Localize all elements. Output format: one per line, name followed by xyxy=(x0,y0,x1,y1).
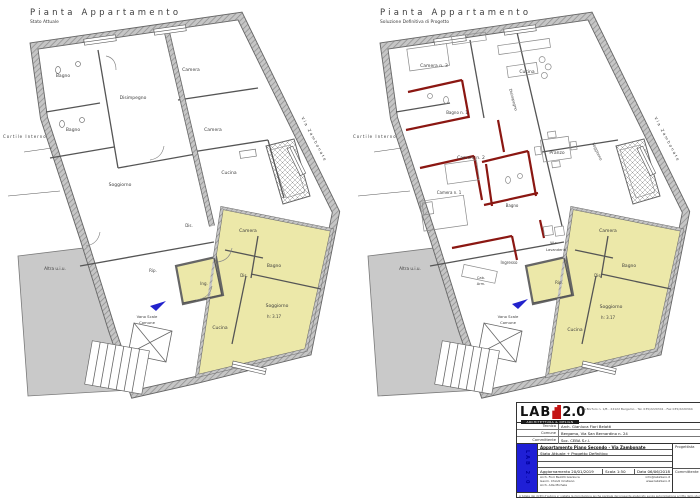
revision-row: Aggiornamento 20/01/2019 Scala 1:50 Data… xyxy=(538,468,672,475)
studio-address: Via Borfuro n. 1/B - 24122 Bergamo - Tel… xyxy=(581,407,700,411)
room-height-label: h: 3.17 xyxy=(267,314,282,319)
contact-list: info@lab2zero.it www.lab2zero.it xyxy=(646,476,670,491)
logo-lab-text: LAB xyxy=(520,407,551,419)
room-label: Camera xyxy=(204,127,222,133)
room-label: Dis. xyxy=(185,223,193,228)
neighbor-label: Altra u.i.u. xyxy=(44,266,66,271)
room-label: Ing. xyxy=(200,281,208,286)
title-block-main: LAB 2.0 Appartamento Piano Secondo - Via… xyxy=(517,444,700,493)
room-label: Pranzo xyxy=(549,150,564,156)
plan-title: Pianta Appartamento xyxy=(380,8,531,18)
studio-logo: LAB2.0 ARCHITETTURA & DESIGN xyxy=(520,405,585,419)
room-label: Cucina xyxy=(221,170,237,176)
room-label: Comune xyxy=(139,320,155,325)
legal-note: A tutela dei diritti d'autore e' vietata… xyxy=(517,493,700,500)
room-height-label: h: 3.17 xyxy=(601,315,616,320)
room-label: Camera n. 2 xyxy=(457,155,485,161)
room-label: Cucina xyxy=(567,327,583,333)
room-label: Rip. xyxy=(555,280,563,285)
info-row: Committente Soc. CEBA S.r.l. xyxy=(517,437,700,444)
courtyard-label: Cortile Interno xyxy=(353,134,397,139)
team-and-contacts: Arch. Fiori Belotti Gianluca Geom. Chiod… xyxy=(538,475,672,492)
room-label: Arm. xyxy=(477,282,486,286)
blue-strip: LAB 2.0 xyxy=(517,444,538,492)
logo-building-icon xyxy=(552,405,561,419)
room-label: Lavanderia xyxy=(546,248,566,252)
room-label: Camera xyxy=(182,67,200,73)
plan-title: Pianta Appartamento xyxy=(30,8,181,18)
room-label: Soggiorno xyxy=(109,182,132,188)
date-label: Data xyxy=(637,469,646,474)
drawing-sheet: Pianta Appartamento Stato Attuale Bagno … xyxy=(0,0,700,500)
team-list: Arch. Fiori Belotti Gianluca Geom. Chiod… xyxy=(540,476,580,491)
plan-subtitle: Soluzione Definitiva di Progetto xyxy=(380,19,449,25)
room-label: Ingresso xyxy=(501,260,518,265)
title-block: LAB2.0 ARCHITETTURA & DESIGN Via Borfuro… xyxy=(516,402,700,498)
info-value: Soc. CEBA S.r.l. xyxy=(559,437,700,444)
update-label: Aggiornamento xyxy=(540,469,570,474)
room-label: Camera n. 3 xyxy=(420,63,448,69)
project-info-table: Tecnico Arch. Gianluca Fiori Belotti Com… xyxy=(517,423,700,444)
scale-value: 1:50 xyxy=(617,469,626,474)
room-label: Cucina xyxy=(212,325,228,331)
info-row: Tecnico Arch. Gianluca Fiori Belotti xyxy=(517,423,700,430)
room-label: Dis. xyxy=(240,273,248,278)
room-label: Rip. xyxy=(149,268,157,273)
courtyard-label: Cortile Interno xyxy=(3,134,47,139)
floor-plan-project: Pianta Appartamento Soluzione Definitiva… xyxy=(350,0,700,400)
info-value: Bergamo, Via San Bernardino n. 24 xyxy=(559,430,700,436)
room-label: W.c. xyxy=(550,241,557,245)
room-label: Camera xyxy=(239,228,257,234)
info-value: Arch. Gianluca Fiori Belotti xyxy=(559,423,700,429)
designer-label: Progettista xyxy=(673,444,700,469)
signature-column: Progettista Committente xyxy=(673,444,700,492)
room-label: Bagno xyxy=(56,73,71,79)
room-label: Soggiorno xyxy=(600,304,623,310)
info-label: Committente xyxy=(517,437,559,444)
update-value: 20/01/2019 xyxy=(571,469,593,474)
room-label: Vano Scale xyxy=(137,314,158,319)
room-label: Bagno xyxy=(66,127,81,133)
plan-subtitle: Stato Attuale xyxy=(30,19,59,25)
room-label: Cucina xyxy=(519,69,535,75)
title-block-center: Appartamento Piano Secondo - Via Zambona… xyxy=(538,444,673,492)
floor-plan-existing: Pianta Appartamento Stato Attuale Bagno … xyxy=(0,0,350,400)
room-label: Camera xyxy=(599,228,617,234)
client-label: Committente xyxy=(673,469,700,493)
room-label: Bagno xyxy=(506,203,519,208)
room-label: Cab. xyxy=(477,276,485,280)
neighbor-label: Altra u.i.u. xyxy=(399,266,421,271)
room-label: Vano Scale xyxy=(498,314,519,319)
title-block-header: LAB2.0 ARCHITETTURA & DESIGN Via Borfuro… xyxy=(517,403,700,423)
room-label: Soggiorno xyxy=(266,303,289,309)
room-label: Camera n. 1 xyxy=(437,190,462,195)
room-label: Bagno n. 1 xyxy=(446,110,468,115)
team-member: Arch. Aita Michela xyxy=(540,484,580,488)
room-label: Comune xyxy=(500,320,516,325)
room-label: Dis. xyxy=(594,273,602,278)
logo-tagline: ARCHITETTURA & DESIGN xyxy=(521,420,579,424)
contact-website: www.lab2zero.it xyxy=(646,480,670,484)
info-label: Comune xyxy=(517,430,559,436)
info-row: Comune Bergamo, Via San Bernardino n. 24 xyxy=(517,430,700,437)
scale-label: Scala xyxy=(605,469,615,474)
room-label: Bagno xyxy=(622,263,637,269)
room-label: Disimpegno xyxy=(120,95,147,101)
date-value: 06/06/2018 xyxy=(648,469,670,474)
room-label: Bagno xyxy=(267,263,282,269)
